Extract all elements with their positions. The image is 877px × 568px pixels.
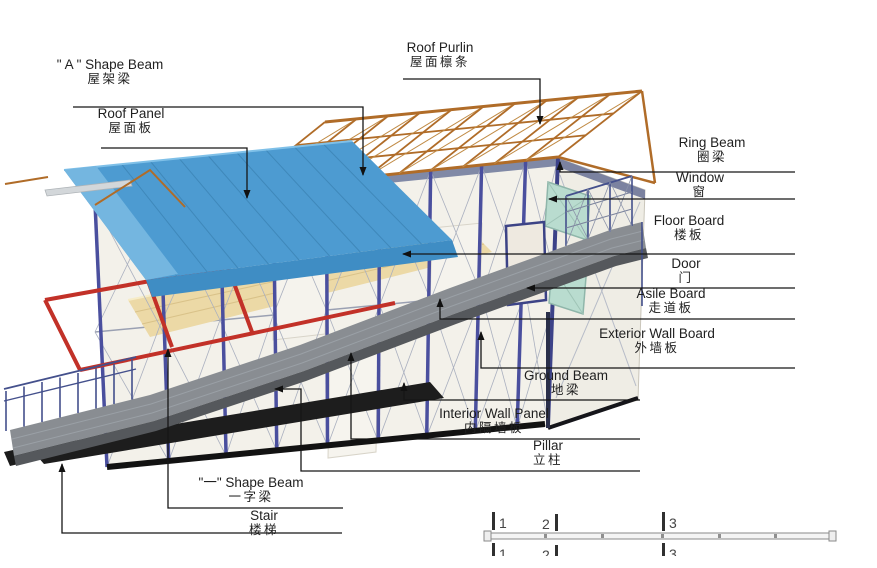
label-zh: 地梁 xyxy=(524,383,608,397)
label-en: Pillar xyxy=(533,438,563,453)
label-zh: 屋面板 xyxy=(98,121,165,135)
svg-text:1: 1 xyxy=(499,546,507,562)
label-zh: 外墙板 xyxy=(599,341,715,355)
label-zh: 走道板 xyxy=(636,301,705,315)
svg-text:2: 2 xyxy=(542,547,550,563)
scale-bar: 1 2 3 1 2 3 xyxy=(484,512,836,563)
label-en: Window xyxy=(676,170,724,185)
label-zh: 一字梁 xyxy=(199,490,304,504)
label-pillar: Pillar立柱 xyxy=(533,438,563,467)
label-roof-purlin: Roof Purlin屋面檩条 xyxy=(407,40,474,69)
scale-tick-1: 1 xyxy=(499,515,507,531)
scale-tick-2: 2 xyxy=(542,516,550,532)
label-zh: 楼板 xyxy=(654,228,725,242)
label-en: "一" Shape Beam xyxy=(199,475,304,490)
label-a-shape-beam: " A " Shape Beam屋架梁 xyxy=(57,57,163,86)
label-door: Door门 xyxy=(671,256,700,285)
prefab-house-diagram: 1 2 3 1 2 3 Roof Purlin屋面檩条 " A " Shape … xyxy=(0,0,877,568)
label-zh: 楼梯 xyxy=(249,523,279,537)
label-en: Exterior Wall Board xyxy=(599,326,715,341)
label-exterior-wall-board: Exterior Wall Board外墙板 xyxy=(599,326,715,355)
label-roof-panel: Roof Panel屋面板 xyxy=(98,106,165,135)
label-en: Ring Beam xyxy=(679,135,746,150)
label-zh: 门 xyxy=(671,271,700,285)
label-en: Door xyxy=(671,256,700,271)
label-ring-beam: Ring Beam圈梁 xyxy=(679,135,746,164)
label-en: Roof Panel xyxy=(98,106,165,121)
label-en: Interior Wall Panel xyxy=(439,406,549,421)
label-zh: 立柱 xyxy=(533,453,563,467)
label-floor-board: Floor Board楼板 xyxy=(654,213,725,242)
label-interior-wall-panel: Interior Wall Panel内隔墙板 xyxy=(439,406,549,435)
label-window: Window窗 xyxy=(676,170,724,199)
label-stair: Stair楼梯 xyxy=(249,508,279,537)
label-one-shape-beam: "一" Shape Beam一字梁 xyxy=(199,475,304,504)
label-zh: 窗 xyxy=(676,185,724,199)
label-en: Asile Board xyxy=(636,286,705,301)
label-en: Ground Beam xyxy=(524,368,608,383)
label-asile-board: Asile Board走道板 xyxy=(636,286,705,315)
svg-text:3: 3 xyxy=(669,546,677,562)
label-zh: 屋面檩条 xyxy=(407,55,474,69)
label-zh: 圈梁 xyxy=(679,150,746,164)
label-zh: 屋架梁 xyxy=(57,72,163,86)
label-ground-beam: Ground Beam地梁 xyxy=(524,368,608,397)
label-en: Floor Board xyxy=(654,213,725,228)
scale-tick-3: 3 xyxy=(669,515,677,531)
label-en: Stair xyxy=(249,508,279,523)
label-en: Roof Purlin xyxy=(407,40,474,55)
label-en: " A " Shape Beam xyxy=(57,57,163,72)
scale-bar-cropped-row: 1 2 3 xyxy=(492,543,677,563)
label-zh: 内隔墙板 xyxy=(439,421,549,435)
